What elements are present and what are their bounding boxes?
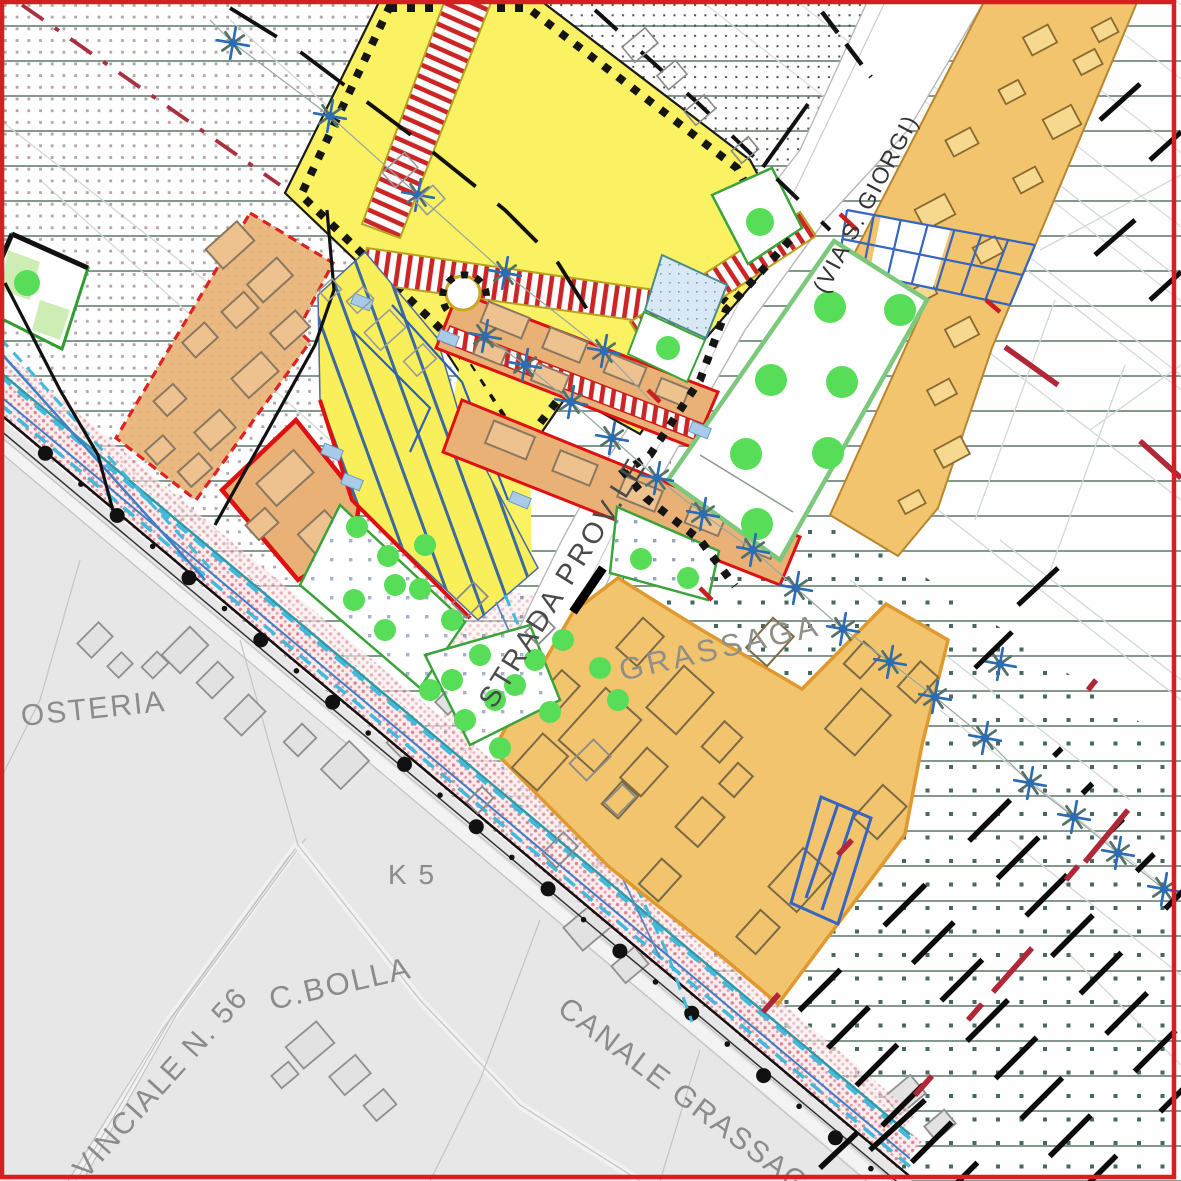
svg-text:K 5: K 5 [388,859,436,890]
